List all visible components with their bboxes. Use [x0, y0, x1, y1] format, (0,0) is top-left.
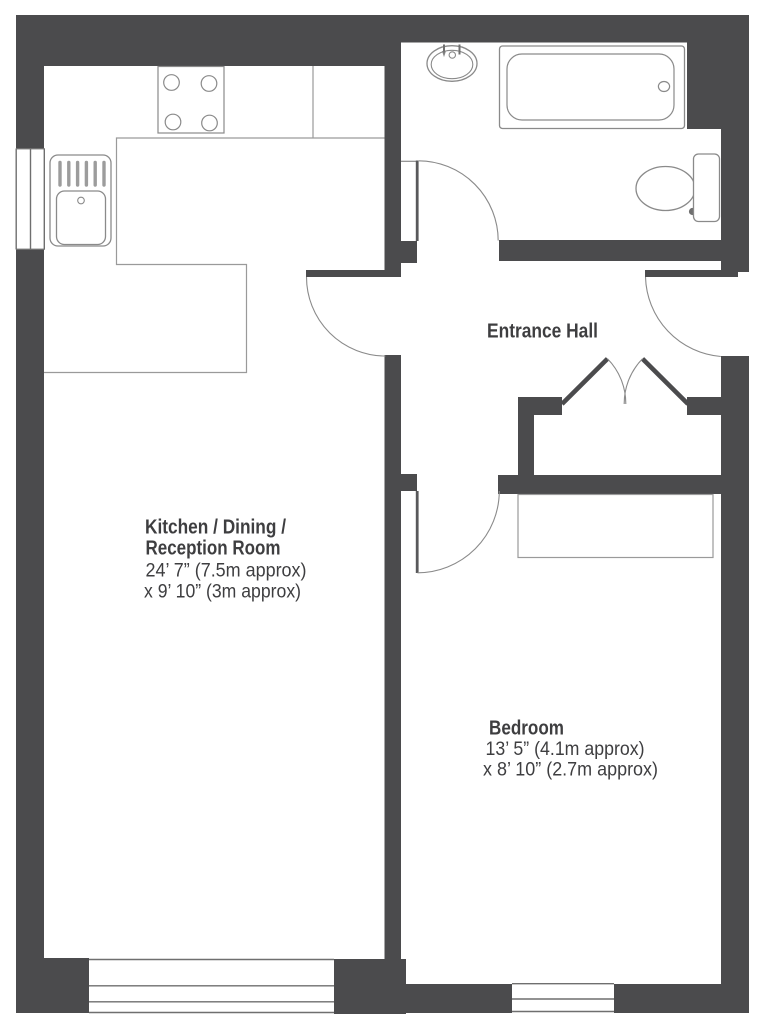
- svg-text:Reception Room: Reception Room: [146, 538, 281, 560]
- svg-text:Entrance Hall: Entrance Hall: [487, 321, 598, 343]
- svg-text:x 8’ 10” (2.7m approx): x 8’ 10” (2.7m approx): [483, 759, 658, 781]
- svg-text:Bedroom: Bedroom: [489, 718, 564, 740]
- svg-text:24’ 7” (7.5m approx): 24’ 7” (7.5m approx): [146, 560, 307, 582]
- svg-text:Kitchen / Dining /: Kitchen / Dining /: [145, 517, 286, 539]
- svg-text:13’ 5” (4.1m approx): 13’ 5” (4.1m approx): [486, 738, 645, 760]
- svg-text:x 9’ 10” (3m approx): x 9’ 10” (3m approx): [144, 581, 301, 603]
